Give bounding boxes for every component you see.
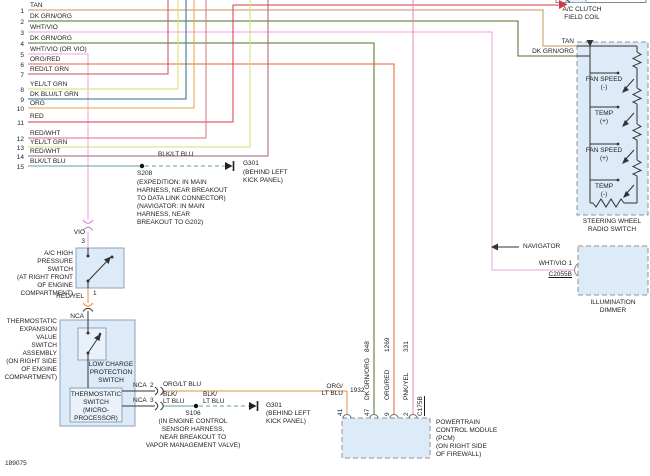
radio-tan-label: TAN [534, 38, 574, 45]
wire-3-wht-vio [28, 32, 574, 270]
radio-rung1-sign: (-) [582, 84, 626, 91]
circuit-12-label: RED/WHT [30, 130, 60, 137]
illum-caption-2: DIMMER [578, 307, 648, 314]
circuit-11-label: RED [30, 113, 44, 120]
pcm-caption-4: (ON RIGHT SIDE [436, 443, 487, 450]
pcm-caption-2: CONTROL MODULE [436, 427, 497, 434]
pcm-pin-2: 2 [403, 404, 410, 416]
ground-g301-arrow-top [225, 162, 233, 170]
blk-lt-blu-a2: LT BLU [163, 398, 184, 405]
circuit-8-number: 8 [2, 87, 24, 94]
pcm-caption-5: OF FIREWALL) [436, 451, 481, 458]
circuit-7-number: 7 [2, 72, 24, 79]
low-charge-label-2: PROTECTION [88, 369, 134, 376]
ground-g301-top-note-1: (BEHIND LEFT [243, 169, 287, 176]
radio-rung4-label: TEMP [582, 183, 626, 190]
hp-note-4: (AT RIGHT FRONT [13, 274, 73, 281]
tev-note-8: COMPARTMENT) [0, 374, 57, 381]
circuit-5-label: WHT/VIO (OR VIO) [30, 46, 87, 53]
s208-wire-label: BLK/LT BLU [158, 151, 194, 158]
low-charge-label-1: LOW CHARGE [88, 361, 134, 368]
radio-rung4-sign: (-) [582, 191, 626, 198]
ac-clutch-label-2: FIELD COIL [550, 14, 614, 21]
radio-rung2-sign: (+) [582, 118, 626, 125]
pcm-caption-1: POWERTRAIN [436, 419, 480, 426]
radio-rung2-label: TEMP [582, 110, 626, 117]
illum-connector-label: C2055B [512, 271, 572, 278]
micro-label-2: SWITCH [70, 399, 122, 406]
circuit-2-number: 2 [2, 19, 24, 26]
s208-note-2: HARNESS, NEAR BREAKOUT [137, 187, 228, 194]
vio-wire-label: VIO [55, 229, 85, 236]
nca2-nca3-connectors [155, 387, 163, 410]
s106-name: S106 [133, 410, 253, 417]
radio-caption-1: STEERING WHEEL [572, 218, 650, 225]
tev-note-6: (ON RIGHT SIDE [0, 358, 57, 365]
illum-caption-1: ILLUMINATION [578, 299, 648, 306]
hp-note-5: OF ENGINE [13, 282, 73, 289]
s208-name: S208 [137, 170, 152, 177]
s106-note-3: NEAR BREAKOUT TO [133, 434, 253, 441]
s208-note-5: HARNESS, NEAR [137, 211, 190, 218]
wire-2-dk-grn-org [28, 21, 577, 56]
circuit-8-label: YEL/LT GRN [30, 81, 67, 88]
hp-pin-out-label: 1 [93, 290, 97, 297]
tev-note-1: THERMOSTATIC [0, 318, 57, 325]
circuit-6-label: ORG/RED [30, 56, 60, 63]
document-number: 189075 [5, 460, 27, 467]
pcm-wire9-label: ORG/RED [384, 360, 391, 400]
ground-g301-top-name: G301 [243, 160, 259, 167]
circuit-2-label: DK GRN/ORG [30, 13, 72, 20]
s106-note-4: VAPOR MANAGEMENT VALVE) [133, 442, 253, 449]
ground-g301-bottom-name: G301 [266, 402, 282, 409]
hp-note-1: A/C HIGH [13, 250, 73, 257]
circuit-15-number: 15 [2, 164, 24, 171]
radio-rung3-label: FAN SPEED [582, 147, 626, 154]
s106-note-1: (IN ENGINE CONTROL [133, 418, 253, 425]
micro-label-1: THERMOSTATIC [70, 391, 122, 398]
circuit-9-number: 9 [2, 97, 24, 104]
low-charge-label-3: SWITCH [88, 377, 134, 384]
radio-rung1-label: FAN SPEED [582, 76, 626, 83]
nca2-label: NCA 2 [133, 382, 154, 389]
pcm-connector-c175b: C175B [417, 392, 424, 416]
radio-rung3-sign: (+) [582, 155, 626, 162]
illum-wire-label: WHT/VIO 1 [512, 260, 572, 267]
circuit-11-number: 11 [2, 120, 24, 127]
ground-g301-top-note-2: KICK PANEL) [243, 177, 283, 184]
s208-note-3: TO DATA LINK CONNECTOR) [137, 195, 226, 202]
circuit-12-number: 12 [2, 136, 24, 143]
ground-g301-bottom-note-2: KICK PANEL) [266, 418, 306, 425]
circuit-9-label: DK BLU/LT GRN [30, 91, 79, 98]
circuit-14-label: RED/WHT [30, 148, 60, 155]
s106-note-2: SENSOR HARNESS, [133, 426, 253, 433]
pcm-circuit-1932: 1932 [350, 387, 364, 394]
circuit-10-number: 10 [2, 106, 24, 113]
circuit-3-number: 3 [2, 30, 24, 37]
red-yel-wire-label: RED/YEL [34, 293, 84, 300]
radio-dkgrnorg-label: DK GRN/ORG [514, 48, 574, 55]
pcm-circuit-848: 848 [364, 334, 371, 352]
circuit-3-label: WHT/VIO [30, 24, 58, 31]
illumination-dimmer-box [578, 246, 648, 295]
pcm-wire47-label: DK GRN/ORG [364, 356, 371, 400]
pcm-wire41-label-2: LT BLU [314, 390, 343, 397]
tev-note-3: VALUE [0, 334, 57, 341]
tev-note-4: SWITCH [0, 342, 57, 349]
ground-g301-arrow-bottom [249, 402, 257, 410]
s208-note-4: (NAVIGATOR: IN MAIN [137, 203, 205, 210]
s208-note-6: BREAKOUT TO G202) [137, 219, 203, 226]
circuit-13-number: 13 [2, 145, 24, 152]
org-lt-blu-label: ORG/LT BLU [163, 381, 201, 388]
micro-label-3: (MICRO- [70, 407, 122, 414]
circuit-1-number: 1 [2, 8, 24, 15]
pcm-box [342, 418, 430, 458]
pcm-wire2-label: PNK/YEL [403, 360, 410, 400]
wiring-diagram-page: 1 TAN 2 DK GRN/ORG 3 WHT/VIO 4 DK GRN/OR… [0, 0, 650, 476]
pcm-caption-3: (PCM) [436, 435, 455, 442]
circuit-14-number: 14 [2, 154, 24, 161]
circuit-6-number: 6 [2, 62, 24, 69]
red-yel-connector-arc [83, 303, 93, 306]
wire-14-red-wht [28, 0, 268, 156]
circuit-13-label: YEL/LT GRN [30, 139, 67, 146]
ac-clutch-label-1: A/C CLUTCH [550, 6, 614, 13]
micro-label-4: PROCESSOR) [70, 415, 122, 422]
pcm-circuit-1269: 1269 [384, 334, 391, 352]
circuit-4-label: DK GRN/ORG [30, 35, 72, 42]
hp-note-2: PRESSURE [13, 258, 73, 265]
circuit-10-label: ORG [30, 100, 45, 107]
wire-1-tan [28, 10, 577, 46]
radio-caption-2: RADIO SWITCH [572, 226, 650, 233]
pcm-pin-9: 9 [384, 404, 391, 416]
hp-note-3: SWITCH [13, 266, 73, 273]
vio-pin-label: 3 [55, 238, 85, 245]
tev-note-7: OF ENGINE [0, 366, 57, 373]
circuit-7-label: RED/LT GRN [30, 66, 69, 73]
circuit-1-label: TAN [30, 2, 43, 9]
tev-note-2: EXPANSION [0, 326, 57, 333]
pcm-pin-41: 41 [337, 402, 344, 416]
illum-dimmer-connector [575, 264, 578, 276]
navigator-label: NAVIGATOR [523, 243, 560, 250]
nca3-label: NCA 3 [133, 397, 154, 404]
circuit-15-label: BLK/LT BLU [30, 158, 66, 165]
circuit-5-number: 5 [2, 52, 24, 59]
pcm-circuit-331: 331 [403, 334, 410, 352]
s208-note-1: (EXPEDITION: IN MAIN [137, 179, 207, 186]
blk-lt-blu-b2: LT BLU [203, 398, 224, 405]
ground-g301-bottom-note-1: (BEHIND LEFT [266, 410, 310, 417]
low-charge-switch-box [78, 328, 106, 360]
pcm-pin-47: 47 [364, 402, 371, 416]
circuit-4-number: 4 [2, 41, 24, 48]
tev-note-5: ASSEMBLY [0, 350, 57, 357]
